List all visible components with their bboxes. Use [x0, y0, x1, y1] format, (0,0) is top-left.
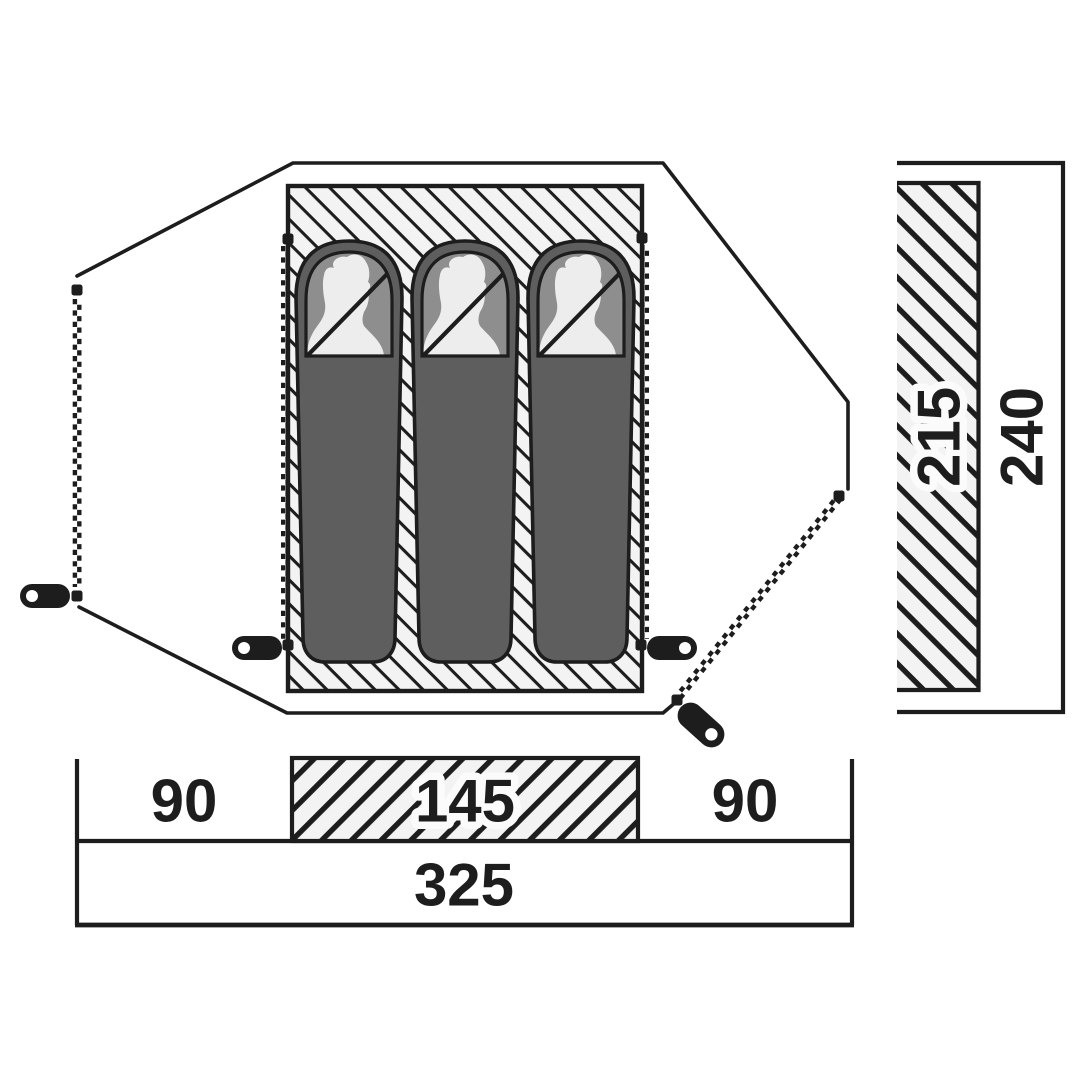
width-dimension-figure: 90 145 90 325 — [75, 758, 854, 925]
width-right-label: 90 — [712, 768, 779, 835]
zipper-stop-dot — [636, 640, 647, 651]
sleeping-bag-1 — [296, 241, 402, 662]
zipper-stop-dot — [72, 591, 83, 602]
tent-top-view — [20, 163, 848, 753]
zipper-stop-dot — [834, 491, 845, 502]
width-total-label: 325 — [414, 852, 514, 919]
zipper-stop-dot — [283, 640, 294, 651]
diagram-canvas: 215 240 90 145 90 325 — [0, 0, 1088, 1088]
zipper-pull-icon — [647, 636, 697, 660]
zipper-pull-icon — [672, 697, 730, 752]
depth-inner-label: 215 — [906, 387, 973, 487]
depth-dimension-figure: 215 240 — [897, 163, 1063, 712]
zipper-stop-dot — [672, 695, 683, 706]
tent-floorplan-diagram: 215 240 90 145 90 325 — [0, 0, 1088, 1088]
sleeping-bag-3 — [528, 241, 634, 662]
sleeping-bag-2 — [412, 241, 518, 662]
door-zipper-right — [672, 491, 845, 706]
zipper-stop-dot — [283, 234, 294, 245]
width-left-label: 90 — [151, 768, 218, 835]
door-zipper-left — [72, 285, 83, 602]
width-inner-label: 145 — [415, 768, 515, 835]
zipper-pull-icon — [20, 584, 70, 608]
zipper-stop-dot — [72, 285, 83, 296]
zipper-pull-icon — [232, 636, 282, 660]
depth-total-label: 240 — [989, 387, 1056, 487]
zipper-stop-dot — [637, 233, 648, 244]
